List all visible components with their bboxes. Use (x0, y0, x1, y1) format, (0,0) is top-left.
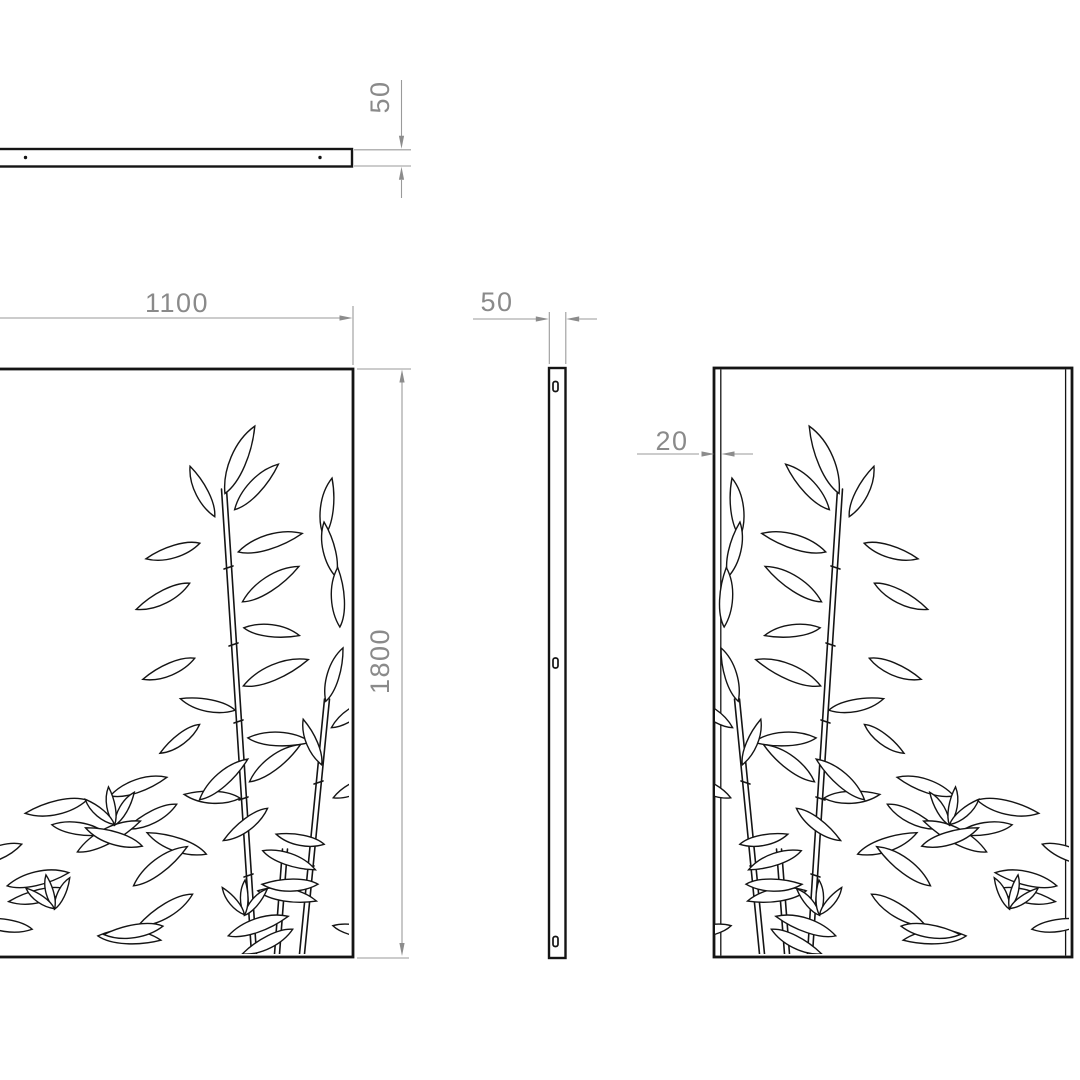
technical-drawing: 50 1100 1800 (0, 0, 1080, 1080)
arrow-up-icon (399, 370, 404, 383)
arrow-right-icon (702, 451, 715, 456)
arrow-right-icon (536, 316, 549, 321)
back-view: 20 (637, 368, 1080, 959)
dimension-panel-height: 1800 (357, 369, 411, 958)
top-view: 50 (0, 80, 411, 198)
dimension-label-top-thickness: 50 (365, 80, 395, 113)
arrow-down-icon (399, 943, 404, 956)
arrow-down-icon (399, 136, 404, 149)
dimension-label-panel-width: 1100 (145, 288, 209, 318)
dimension-top-thickness: 50 (354, 80, 411, 198)
side-view: 50 (473, 287, 597, 958)
top-view-hole-right (318, 156, 321, 159)
side-view-slot-middle (553, 658, 558, 668)
dimension-panel-width: 1100 (0, 288, 353, 365)
arrow-right-icon (340, 315, 353, 320)
drawing-canvas: 50 1100 1800 (0, 0, 1080, 1080)
arrow-up-icon (399, 167, 404, 180)
dimension-label-flange-depth: 20 (655, 426, 688, 456)
top-view-outline (0, 149, 352, 167)
side-view-slot-top (553, 382, 558, 392)
side-view-slot-bottom (553, 937, 558, 947)
front-view: 1100 1800 (0, 288, 411, 959)
arrow-left-icon (566, 316, 579, 321)
top-view-hole-left (24, 156, 27, 159)
dimension-side-thickness: 50 (473, 287, 597, 364)
dimension-label-side-thickness: 50 (480, 287, 513, 317)
dimension-label-panel-height: 1800 (365, 628, 395, 694)
